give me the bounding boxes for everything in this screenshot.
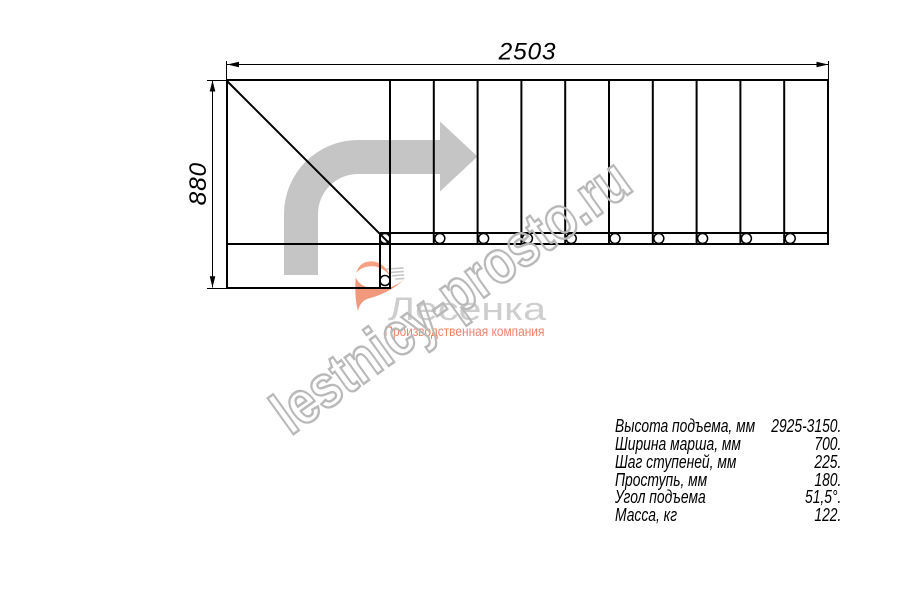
svg-text:2503: 2503	[498, 39, 557, 66]
svg-text:880: 880	[185, 162, 212, 205]
